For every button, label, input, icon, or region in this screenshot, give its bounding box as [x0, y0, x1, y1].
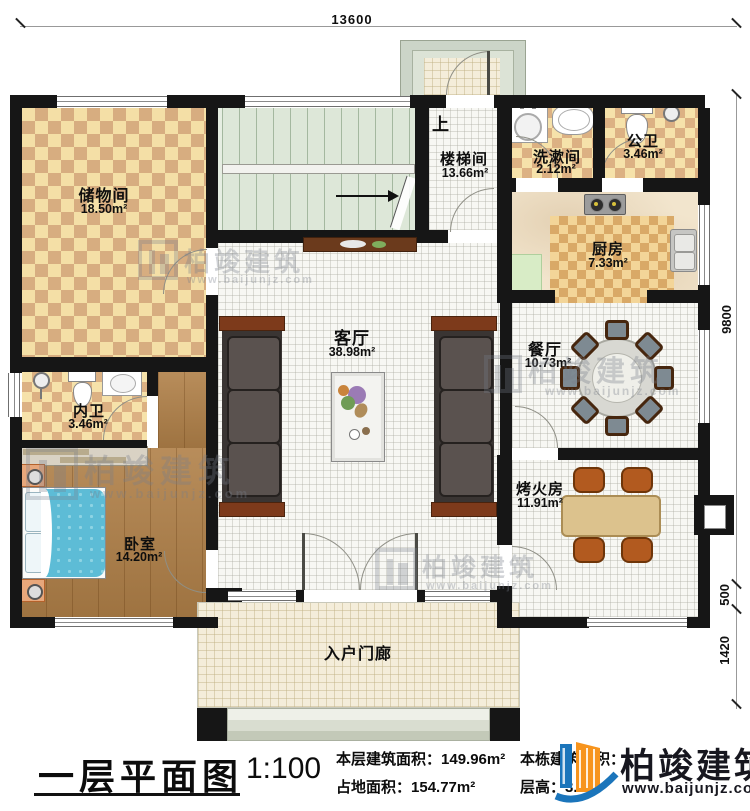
fire-room-chair [621, 467, 653, 493]
table-dot [349, 429, 360, 440]
sofa-cushion [439, 336, 493, 391]
wall [698, 423, 710, 497]
brand-logo-icon [554, 736, 622, 806]
kitchen-sink-basin [674, 234, 695, 252]
dimension-line-top [20, 26, 737, 27]
door-leaf [415, 533, 418, 590]
storage-area: 18.50m² [81, 202, 128, 216]
stair-flight-upper [222, 108, 415, 164]
kitchen-area: 7.33m² [588, 256, 628, 270]
wall [10, 357, 218, 372]
kitchen-sink-basin [674, 252, 695, 270]
ensuite-area: 3.46m² [68, 417, 108, 431]
wall [512, 290, 555, 303]
brand-url: www.baijunjz.com [622, 780, 750, 797]
floorplan-canvas: 13600 9800 500 1420 [0, 0, 750, 811]
wall [647, 290, 698, 303]
fire-room-chair [573, 537, 605, 563]
sofa-arm [219, 316, 285, 331]
wall [173, 617, 218, 628]
window [57, 96, 167, 107]
nightstand-lamp [27, 584, 43, 600]
dining-chair [605, 320, 629, 340]
stair-landing-rail [222, 164, 415, 174]
toilet-tank [68, 371, 96, 382]
fire-room-chair [573, 467, 605, 493]
dining-chair [605, 416, 629, 436]
wall [10, 95, 57, 108]
door-leaf [487, 51, 490, 95]
wall [497, 455, 512, 545]
dimension-right-porch: 1420 [717, 636, 732, 665]
wall [500, 303, 512, 455]
wall [296, 590, 304, 602]
hall-floor [158, 372, 206, 448]
stairwell-area: 13.66m² [442, 166, 489, 180]
wall [558, 178, 602, 192]
storage-floor [22, 108, 206, 357]
floor-area-label: 本层建筑面积： [336, 751, 441, 768]
entry-steps [227, 708, 490, 741]
wash-sink-bowl [558, 109, 590, 131]
back-door-threshold [446, 95, 494, 108]
stove-burner-flame [594, 202, 598, 206]
dining-area: 10.73m² [525, 356, 572, 370]
wall [698, 108, 710, 205]
porch-pillar [197, 708, 227, 741]
sofa-cushion [227, 442, 281, 497]
wall [698, 285, 710, 330]
window [699, 330, 710, 423]
porch-pillar [490, 708, 520, 741]
table-dot [362, 427, 370, 435]
door-leaf [302, 533, 305, 590]
wall [497, 617, 589, 628]
shower-head [33, 372, 50, 389]
window [699, 205, 710, 285]
bath-sink-bowl [110, 374, 136, 393]
shower-cord [40, 389, 42, 399]
living-area: 38.98m² [329, 345, 376, 359]
stove-burner-flame [612, 202, 616, 206]
wardrobe-slider [60, 457, 126, 463]
dining-table-top [592, 353, 642, 403]
dimension-right-mid: 500 [717, 584, 732, 606]
flower-decor [338, 385, 349, 396]
floor-area-value: 149.96m² [441, 751, 505, 768]
sheet-scale: 1:100 [246, 752, 321, 786]
wall [10, 108, 22, 373]
wall [10, 617, 55, 628]
title-underline [34, 793, 240, 796]
chimney-niche-window [704, 505, 726, 529]
wall [10, 417, 22, 628]
logo-tower [560, 744, 572, 788]
fire-room-chair [621, 537, 653, 563]
bedroom-area: 14.20m² [116, 550, 163, 564]
wall [698, 533, 710, 628]
stair-up-label: 上 [432, 110, 450, 135]
window [425, 591, 490, 601]
sofa-arm [431, 502, 497, 517]
dimension-line-right [736, 95, 737, 709]
window [228, 591, 296, 601]
site-area-label: 占地面积： [336, 779, 411, 796]
wall [415, 108, 429, 230]
sideboard-plant [372, 241, 386, 248]
wall [417, 590, 425, 602]
stair-flight-lower [222, 174, 415, 230]
nightstand-lamp [27, 469, 43, 485]
dining-chair [654, 366, 674, 390]
dimension-top-label: 13600 [331, 12, 372, 27]
window [245, 96, 410, 107]
wall [512, 178, 516, 192]
wall [167, 95, 245, 108]
site-area-line: 占地面积：154.77m² [336, 776, 475, 797]
sofa-cushion [439, 442, 493, 497]
stair-direction-arrow [336, 195, 388, 197]
sofa-cushion [227, 389, 281, 444]
sofa-arm [431, 316, 497, 331]
dimension-right-main: 9800 [719, 305, 734, 334]
floor-area-line: 本层建筑面积：149.96m² [336, 748, 505, 769]
wall [558, 448, 698, 460]
fire-room-area: 11.91m² [517, 496, 563, 510]
sofa-cushion [227, 336, 281, 391]
public-bath-area: 3.46m² [623, 147, 663, 161]
washroom-area: 2.12m² [536, 162, 576, 176]
wall [206, 372, 218, 550]
wardrobe-slider [23, 449, 89, 455]
wall [147, 372, 158, 396]
sofa-arm [219, 502, 285, 517]
wall [206, 108, 218, 248]
entry-porch-label: 入户门廊 [324, 640, 392, 664]
wall [643, 178, 698, 192]
wall [410, 95, 446, 108]
sideboard-dish [340, 240, 366, 248]
wall [593, 108, 605, 178]
window [55, 618, 173, 627]
window [587, 618, 687, 627]
wall [494, 95, 705, 108]
site-area-value: 154.77m² [411, 779, 475, 796]
wall [497, 108, 512, 303]
wall [20, 440, 147, 448]
wall [206, 295, 218, 357]
sofa-cushion [439, 389, 493, 444]
fire-room-table [561, 495, 661, 537]
window [8, 373, 20, 417]
flower-decor [341, 396, 355, 410]
